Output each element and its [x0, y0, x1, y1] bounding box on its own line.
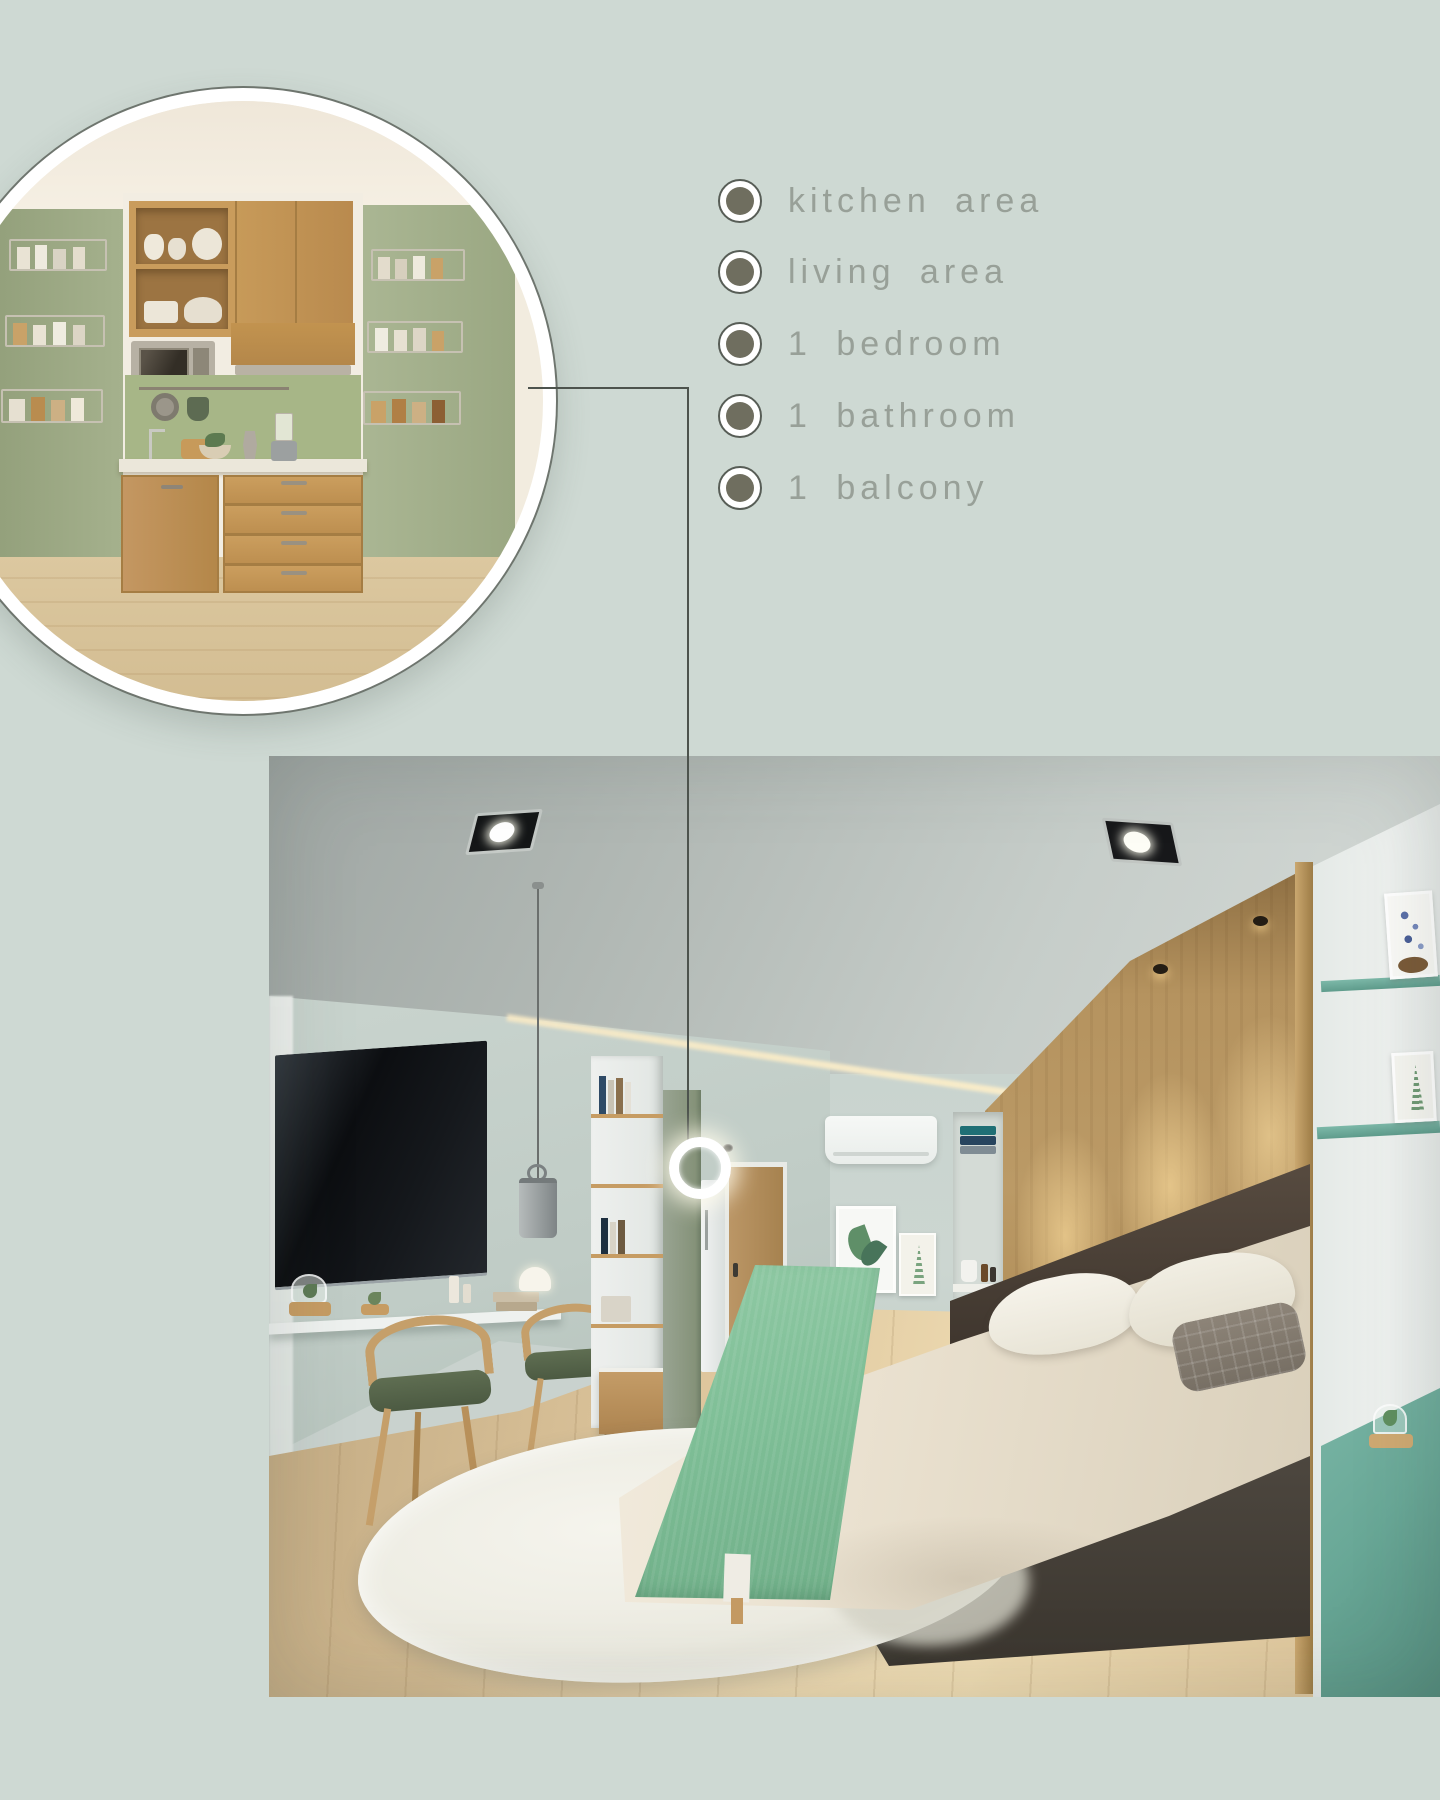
spice-jar	[394, 330, 407, 351]
shelf-cavity	[136, 208, 228, 264]
backsplash	[125, 375, 361, 463]
spice-jar	[53, 249, 66, 269]
spice-jar	[378, 257, 390, 279]
drawer	[225, 477, 361, 503]
spice-jar	[413, 328, 426, 351]
spice-jar	[53, 322, 66, 345]
book-spine	[608, 1080, 614, 1114]
spice-jar	[392, 399, 406, 423]
plant-sprig	[1383, 1410, 1397, 1426]
candle	[449, 1276, 459, 1303]
shelf-plant	[1369, 1404, 1413, 1450]
candle	[463, 1284, 471, 1303]
book-spine	[616, 1078, 623, 1114]
spice-jar	[17, 247, 30, 269]
hanging-pot	[187, 397, 209, 421]
ceiling-spotlight-right	[1102, 818, 1183, 867]
countertop	[119, 459, 367, 472]
book-spine	[618, 1220, 625, 1254]
spice-jar	[412, 402, 426, 423]
spice-rack	[9, 239, 107, 271]
blender-jar	[275, 413, 293, 441]
drawer-handle	[281, 571, 307, 575]
utensil-rail	[139, 387, 289, 390]
bed-foot-frame	[723, 1554, 751, 1603]
spice-jar	[375, 328, 388, 351]
bullet-icon	[718, 250, 762, 294]
feature-label: kitchen area	[788, 182, 1043, 221]
callout-line-vertical	[687, 387, 689, 1140]
dish-vase	[168, 238, 186, 260]
spice-rack	[363, 391, 461, 425]
folded-clothes	[960, 1146, 996, 1154]
lower-cabinet-door	[121, 475, 219, 593]
feature-item-1-bedroom: 1 bedroom	[718, 308, 1006, 380]
spice-jar	[73, 247, 85, 269]
shelf-board	[591, 1184, 663, 1188]
drawer-handle	[281, 541, 307, 545]
feature-item-1-balcony: 1 balcony	[718, 452, 989, 524]
shelf-board	[591, 1254, 663, 1258]
spice-jar	[71, 398, 84, 421]
fridge	[701, 1180, 726, 1372]
ac-unit	[825, 1116, 937, 1164]
spice-jar	[395, 259, 407, 279]
blender	[271, 413, 297, 461]
page: kitchen area living area 1 bedroom 1 bat…	[0, 0, 1440, 1800]
niche-spotlight	[1153, 964, 1168, 974]
bullet-dot-icon	[726, 187, 754, 215]
callout-line-horizontal	[528, 387, 689, 389]
leaf-print-frame-small	[899, 1233, 936, 1296]
herb-leaves	[205, 433, 225, 447]
storage-niche	[953, 1112, 1003, 1298]
shelf-board	[591, 1114, 663, 1118]
pendant-canopy	[532, 882, 544, 889]
hood-vent	[235, 365, 351, 375]
spice-jar	[13, 323, 27, 345]
plant-pot	[289, 1302, 331, 1316]
drawer-stack	[223, 475, 363, 593]
plant-pot-small	[361, 1304, 389, 1315]
feature-item-kitchen-area: kitchen area	[718, 165, 1043, 237]
spice-jar	[9, 399, 25, 421]
drawer	[225, 506, 361, 533]
bullet-icon	[718, 394, 762, 438]
plate-stack	[184, 297, 222, 323]
callout-ring-marker	[669, 1137, 731, 1199]
sideboard-cabinet	[599, 1368, 663, 1434]
spice-jar	[73, 325, 85, 345]
spice-jar	[31, 397, 45, 421]
folded-clothes	[960, 1126, 996, 1135]
bullet-dot-icon	[726, 330, 754, 358]
dish-vase	[144, 234, 164, 260]
feature-label: 1 bathroom	[788, 397, 1020, 436]
fern-art	[913, 1245, 925, 1285]
bedroom-photo	[269, 756, 1440, 1697]
bed-leg	[731, 1598, 743, 1624]
fern-art	[1409, 1065, 1424, 1112]
book-spine	[610, 1222, 616, 1254]
pendant-cord	[537, 886, 539, 1182]
hanging-pan	[151, 393, 179, 421]
feature-label: 1 balcony	[788, 469, 989, 508]
shelf-cavity	[136, 269, 228, 329]
faucet	[149, 429, 152, 461]
fridge-handle	[705, 1210, 708, 1250]
plant-sprig	[368, 1292, 381, 1305]
bottle	[990, 1267, 996, 1282]
kitchen-inset-photo	[0, 88, 556, 714]
spice-rack	[5, 315, 105, 347]
book-spine	[599, 1076, 606, 1114]
plate-stack	[144, 301, 178, 323]
spice-jar	[33, 325, 46, 345]
spice-jar	[51, 400, 65, 421]
floral-art	[1396, 904, 1427, 954]
drawer-handle	[281, 481, 307, 485]
decor-box	[601, 1296, 631, 1322]
spice-rack	[371, 249, 465, 281]
niche-spotlight	[1253, 916, 1268, 926]
moka-pot	[243, 431, 257, 459]
spice-jar	[431, 258, 443, 279]
bottle	[981, 1264, 988, 1282]
spice-jar	[35, 245, 47, 269]
pendant-shade	[519, 1178, 557, 1238]
book-spine	[601, 1218, 608, 1254]
open-shelf-cabinet	[129, 201, 235, 337]
tv-screen	[275, 1041, 487, 1291]
spice-jar	[432, 400, 445, 423]
spotlight-lamp	[1122, 831, 1153, 854]
feature-label: living area	[788, 253, 1008, 292]
kettle	[961, 1260, 977, 1282]
spice-jar	[371, 401, 386, 423]
bullet-dot-icon	[726, 474, 754, 502]
drawer-handle	[281, 511, 307, 515]
spice-rack	[1, 389, 103, 423]
blender-base	[271, 441, 297, 461]
spice-jar	[413, 256, 425, 279]
terrarium-plant	[291, 1274, 327, 1304]
ac-vent	[833, 1152, 929, 1156]
dish-bowl	[192, 228, 222, 260]
feature-label: 1 bedroom	[788, 325, 1006, 364]
bullet-icon	[718, 322, 762, 366]
dome-lamp	[519, 1267, 551, 1291]
shelf-board	[591, 1324, 663, 1328]
plant-sprig	[303, 1284, 317, 1298]
door-lock	[733, 1263, 738, 1277]
bullet-dot-icon	[726, 402, 754, 430]
door-seam	[295, 201, 297, 323]
art-frame-fern	[1391, 1051, 1437, 1123]
upper-cabinet-doors	[235, 201, 353, 323]
folded-clothes	[960, 1136, 996, 1145]
feature-item-1-bathroom: 1 bathroom	[718, 380, 1020, 452]
art-frame-floral	[1384, 890, 1438, 979]
drawer	[225, 566, 361, 591]
range-hood	[231, 323, 355, 365]
feature-item-living-area: living area	[718, 236, 1008, 308]
ceiling-spotlight-left	[465, 809, 543, 856]
wood-pot	[1369, 1434, 1413, 1448]
faucet-spout	[149, 429, 165, 432]
chair-leg	[366, 1408, 391, 1526]
drawer	[225, 536, 361, 563]
book-stack	[493, 1292, 539, 1302]
cabinet-handle	[161, 485, 183, 489]
spice-jar	[432, 331, 444, 351]
bullet-icon	[718, 179, 762, 223]
bullet-dot-icon	[726, 258, 754, 286]
bullet-icon	[718, 466, 762, 510]
pinecone	[1398, 956, 1429, 974]
spice-rack	[367, 321, 463, 353]
book-spine	[625, 1082, 631, 1114]
spotlight-lamp	[487, 821, 517, 843]
